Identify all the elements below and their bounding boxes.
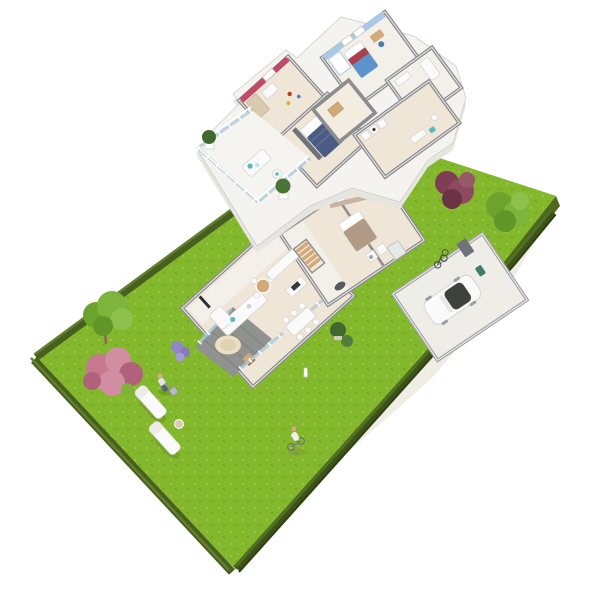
side-table: [175, 420, 184, 429]
floor-plan-render: [0, 0, 600, 600]
bollard-lamp: [304, 368, 307, 377]
gardener-head: [157, 373, 162, 378]
cyclist-head: [292, 427, 297, 432]
floor-plan-canvas: [0, 0, 600, 600]
